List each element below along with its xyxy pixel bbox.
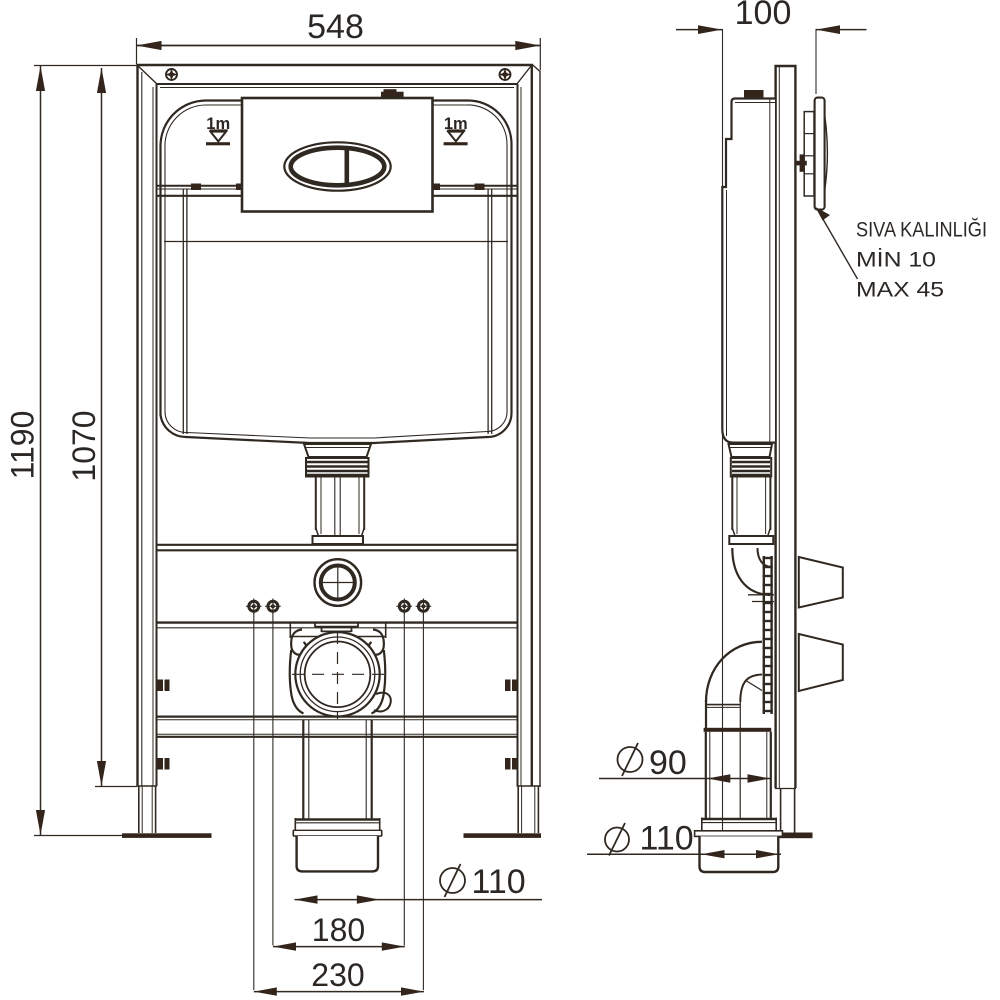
svg-text:230: 230 xyxy=(311,957,364,993)
svg-text:SIVA KALINLIĞI: SIVA KALINLIĞI xyxy=(856,217,987,242)
svg-text:1070: 1070 xyxy=(66,410,102,481)
svg-text:1190: 1190 xyxy=(5,411,41,480)
svg-text:180: 180 xyxy=(312,912,365,948)
svg-text:MİN 10: MİN 10 xyxy=(856,248,936,272)
svg-text:90: 90 xyxy=(649,744,687,782)
svg-text:100: 100 xyxy=(735,0,792,32)
svg-text:110: 110 xyxy=(472,863,526,901)
svg-text:MAX 45: MAX 45 xyxy=(856,278,944,302)
svg-text:110: 110 xyxy=(640,820,694,858)
svg-text:548: 548 xyxy=(307,8,364,46)
